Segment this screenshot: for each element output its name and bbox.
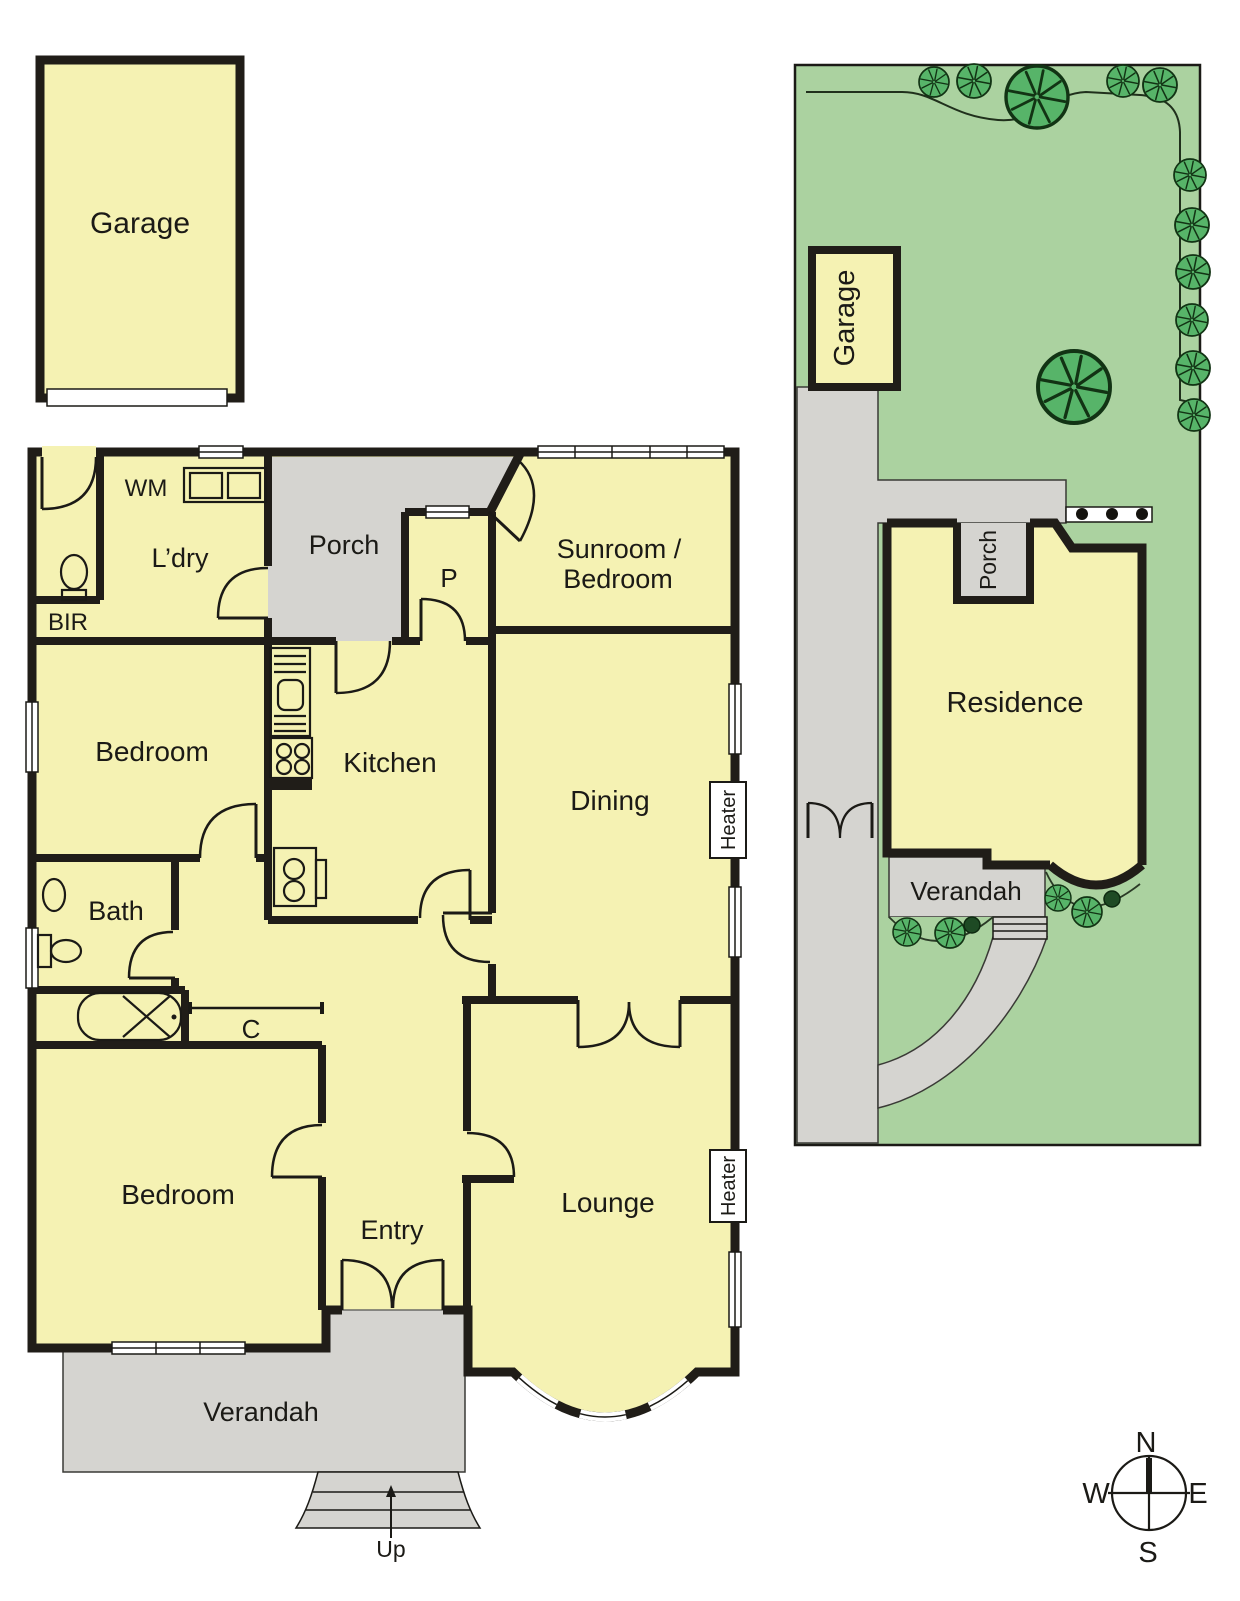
shrub-icon <box>1072 897 1102 927</box>
stairs-icon <box>296 1472 480 1528</box>
laundry-label: L’dry <box>151 543 209 573</box>
tree-icon <box>1176 304 1208 336</box>
compass-south-label: S <box>1138 1537 1157 1569</box>
garage-label: Garage <box>90 207 190 240</box>
cupboard-label: C <box>242 1014 261 1044</box>
bush-icon <box>964 917 980 933</box>
tree-icon <box>1175 208 1209 242</box>
tree-icon <box>957 64 991 98</box>
tree-icon <box>919 67 949 97</box>
site-plan: Garage Porch Residence Verandah <box>795 64 1210 1145</box>
shrub-icon <box>1045 885 1071 911</box>
porch-label: Porch <box>309 530 380 560</box>
shrub-icon <box>935 918 965 948</box>
tree-icon <box>1143 68 1177 102</box>
tree-icon <box>1176 255 1210 289</box>
pergola-strip <box>1066 507 1152 522</box>
bush-icon <box>1104 891 1120 907</box>
dining-label: Dining <box>570 785 649 816</box>
shrub-icon <box>893 918 921 946</box>
sunroom-label-2: Bedroom <box>563 564 673 594</box>
garage-building: Garage <box>40 60 240 406</box>
tree-icon <box>1174 159 1206 191</box>
site-residence-label: Residence <box>946 687 1083 719</box>
compass-rose: N S W E <box>1082 1427 1207 1569</box>
garage-door <box>47 389 227 406</box>
tree-icon <box>1006 66 1068 128</box>
verandah-label: Verandah <box>203 1397 319 1427</box>
stairs-icon <box>993 917 1047 939</box>
tree-icon <box>1038 351 1110 423</box>
bath-label: Bath <box>88 896 144 926</box>
compass-east-label: E <box>1188 1478 1207 1510</box>
entry-label: Entry <box>360 1215 424 1245</box>
compass-north-label: N <box>1136 1427 1157 1459</box>
tree-icon <box>1178 399 1210 431</box>
site-verandah-label: Verandah <box>910 876 1021 906</box>
sunroom-label-1: Sunroom / <box>557 534 682 564</box>
laundry-wm-label: WM <box>125 475 168 502</box>
heater-lounge-label: Heater <box>718 1156 740 1216</box>
compass-west-label: W <box>1082 1478 1110 1510</box>
main-floor-plan: WM L’dry BIR Porch P Sunroom / Bedroom B… <box>26 446 746 1562</box>
pantry-label: P <box>440 563 457 593</box>
tree-icon <box>1176 351 1210 385</box>
kitchen-label: Kitchen <box>343 747 436 778</box>
bir-label: BIR <box>48 609 88 636</box>
floor-plan-page: Garage Porch Residence Verandah Garage <box>0 0 1240 1601</box>
tree-icon <box>1107 65 1139 97</box>
lounge-label: Lounge <box>561 1187 654 1218</box>
heater-dining-label: Heater <box>718 790 740 850</box>
bedroom-rear-label: Bedroom <box>121 1179 235 1210</box>
site-porch-label: Porch <box>975 530 1001 590</box>
bedroom-front-label: Bedroom <box>95 736 209 767</box>
bench-end <box>268 778 312 790</box>
up-label: Up <box>376 1536 405 1562</box>
site-garage-label: Garage <box>829 270 861 367</box>
